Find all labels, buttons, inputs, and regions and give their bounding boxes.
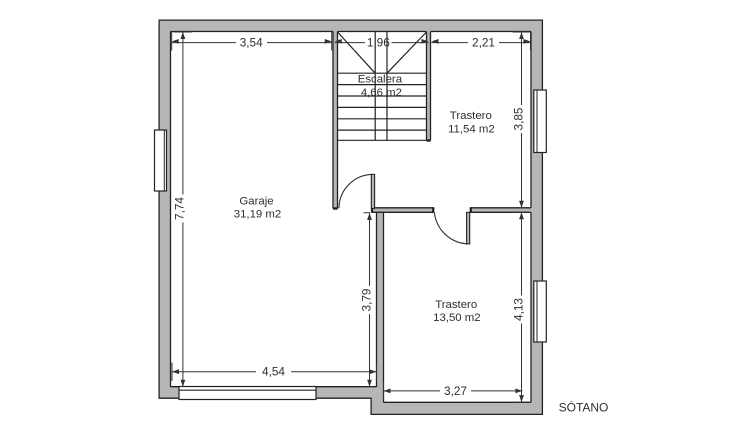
svg-text:4,54: 4,54 [262,365,285,379]
svg-text:3,85: 3,85 [511,107,525,130]
svg-text:3,27: 3,27 [444,384,467,398]
svg-text:SÓTANO: SÓTANO [559,400,609,415]
svg-text:Garaje: Garaje [239,196,273,208]
svg-text:13,50 m2: 13,50 m2 [433,312,481,324]
svg-text:31,19 m2: 31,19 m2 [234,209,282,221]
svg-text:2,21: 2,21 [472,35,495,49]
svg-text:11,54 m2: 11,54 m2 [448,123,495,135]
svg-text:4,66 m2: 4,66 m2 [361,87,402,99]
svg-text:1,96: 1,96 [367,35,390,49]
svg-text:7,74: 7,74 [173,197,187,220]
svg-text:Trastero: Trastero [435,299,477,311]
svg-text:Trastero: Trastero [450,110,492,122]
svg-text:Escalera: Escalera [358,74,403,86]
svg-text:4,13: 4,13 [511,298,525,321]
svg-text:3,79: 3,79 [359,289,373,312]
svg-text:3,54: 3,54 [240,35,263,49]
